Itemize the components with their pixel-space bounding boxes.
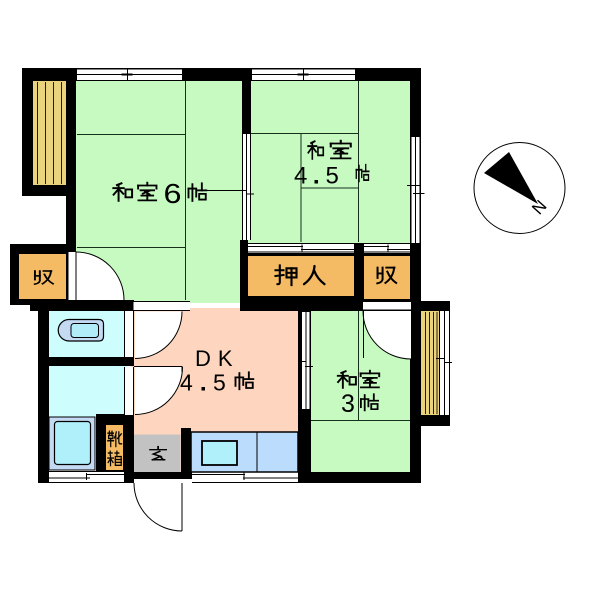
svg-text:3: 3 [341, 390, 355, 418]
svg-text:6: 6 [164, 178, 182, 209]
svg-text:5: 5 [213, 370, 226, 396]
svg-text:DK: DK [195, 346, 240, 371]
svg-text:4: 4 [294, 163, 307, 190]
svg-text:4: 4 [180, 370, 193, 396]
svg-text:5: 5 [326, 163, 339, 190]
